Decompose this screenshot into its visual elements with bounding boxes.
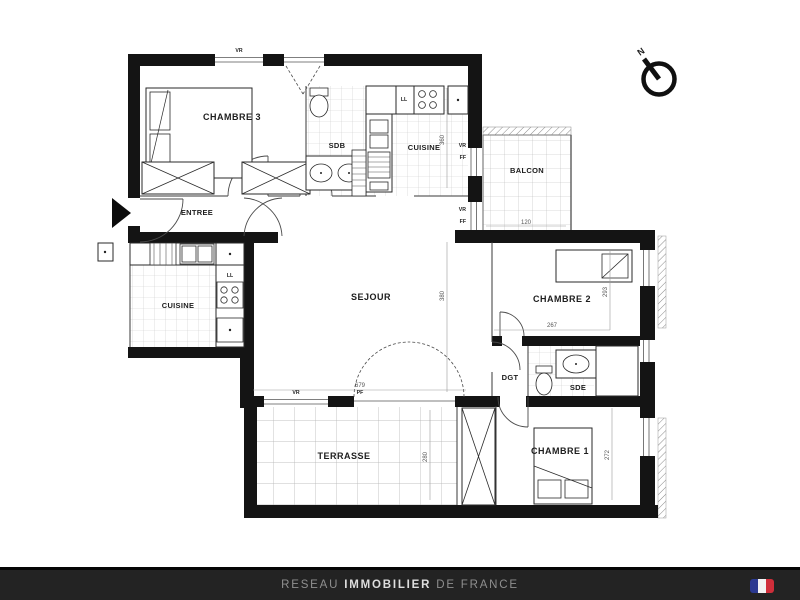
window-label-ff: FF — [460, 155, 466, 161]
toilet-sdb — [310, 88, 328, 117]
closet-chambre3-left — [142, 162, 214, 194]
window-label-vr: VR — [459, 143, 466, 149]
closet-chambre3-right — [242, 162, 310, 194]
compass-north-label: N — [635, 46, 646, 58]
sink-icon — [370, 120, 388, 133]
brand-highlight: IMMOBILIER — [344, 579, 431, 591]
dimension-label-chambre2-height: 293 — [603, 286, 609, 297]
room-label-chambre1: CHAMBRE 1 — [531, 446, 589, 456]
room-label-dgt: DGT — [502, 373, 519, 382]
window-label-pf: PF — [357, 390, 364, 396]
france-flag-icon — [750, 579, 774, 593]
window-label-vr: VR — [235, 48, 242, 54]
dimension-label-terrasse-height: 280 — [423, 451, 429, 462]
window-label-vr: VR — [292, 390, 299, 396]
compass-icon: N — [635, 46, 674, 95]
room-label-sdb: SDB — [329, 141, 346, 150]
toilet-sde — [536, 366, 552, 395]
bed-chambre2 — [556, 250, 632, 282]
closet-sde — [596, 346, 638, 396]
dimension-label-chambre1-height: 272 — [605, 449, 611, 460]
stove-icon — [217, 282, 243, 308]
room-label-chambre2: CHAMBRE 2 — [533, 294, 591, 304]
closet-strip-chambre1 — [462, 408, 495, 505]
dimension-label-cuisine-height: 360 — [440, 134, 446, 145]
brand-suffix: DE FRANCE — [431, 579, 519, 591]
appliance-label-ll: LL — [227, 273, 234, 279]
brand-prefix: RESEAU — [281, 579, 344, 591]
entrance-arrow-icon — [112, 198, 131, 228]
appliance-label-ll: LL — [401, 97, 408, 103]
room-label-cuisine-nord: CUISINE — [408, 143, 441, 152]
room-label-balcon: BALCON — [510, 166, 544, 175]
window-label-ff: FF — [460, 219, 466, 225]
brand-text: RESEAU IMMOBILIER DE FRANCE — [0, 570, 800, 600]
room-label-entree: ENTREE — [181, 208, 213, 217]
dimension-label-sejour-width: 679 — [355, 383, 366, 389]
room-label-sejour: SEJOUR — [351, 292, 391, 302]
room-label-chambre3: CHAMBRE 3 — [203, 112, 261, 122]
window-label-vr: VR — [459, 207, 466, 213]
balcon-exterior-hatch — [483, 127, 571, 135]
footer-bar: RESEAU IMMOBILIER DE FRANCE — [0, 567, 800, 600]
dimension-label-sejour-height: 380 — [440, 290, 446, 301]
balcon-floor — [483, 135, 571, 231]
room-label-sde: SDE — [570, 383, 586, 392]
sink-sde — [556, 350, 596, 378]
room-label-cuisine-ouest: CUISINE — [162, 301, 195, 310]
floor-plan: CHAMBRE 3 SDB CUISINE BALCON ENTREE CUIS… — [0, 0, 800, 567]
dimension-label-balcon-width: 120 — [521, 220, 532, 226]
bed-chambre1 — [534, 428, 592, 504]
dimension-label-chambre2-width: 267 — [547, 323, 558, 329]
stove-icon — [414, 86, 444, 114]
room-label-terrasse: TERRASSE — [317, 451, 370, 461]
exterior-wall-hatch — [658, 236, 666, 518]
